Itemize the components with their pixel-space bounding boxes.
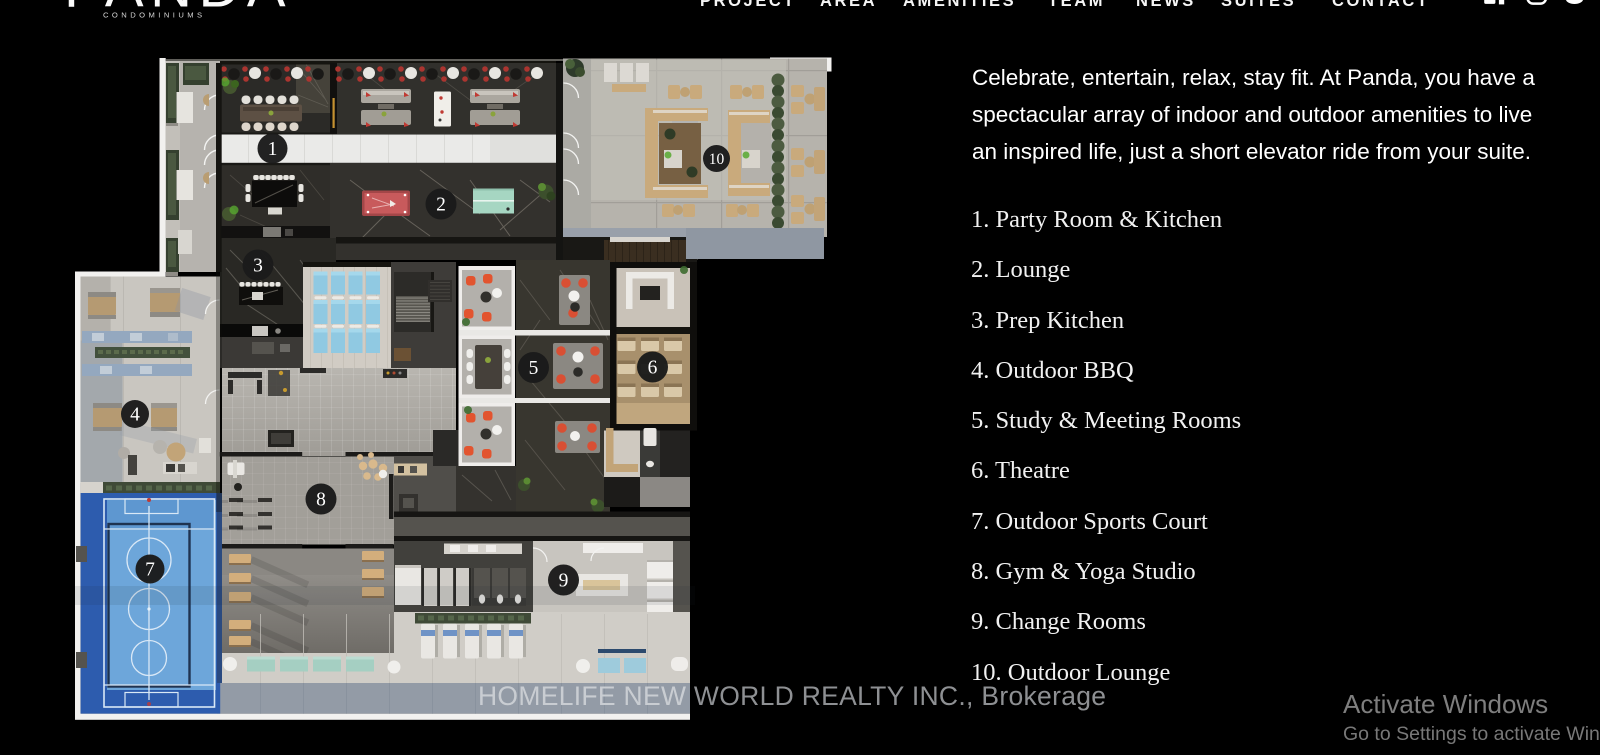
svg-text:2: 2	[436, 195, 446, 216]
svg-text:9: 9	[559, 571, 569, 592]
svg-text:PROJECT: PROJECT	[700, 0, 796, 10]
svg-text:SUITES: SUITES	[1221, 0, 1296, 10]
svg-text:CONTACT: CONTACT	[1332, 0, 1430, 10]
svg-text:6: 6	[648, 358, 658, 379]
svg-text:4: 4	[130, 405, 140, 426]
svg-text:8: 8	[316, 490, 326, 511]
svg-text:10: 10	[709, 151, 725, 168]
svg-text:AMENITIES: AMENITIES	[903, 0, 1016, 10]
svg-text:3: 3	[253, 256, 263, 277]
svg-text:TEAM: TEAM	[1048, 0, 1105, 10]
svg-text:NEWS: NEWS	[1136, 0, 1196, 10]
svg-text:AREA: AREA	[820, 0, 877, 10]
svg-text:5: 5	[529, 358, 539, 379]
svg-text:1: 1	[268, 139, 278, 160]
svg-text:7: 7	[145, 560, 155, 581]
svg-text:CONDOMINIUMS: CONDOMINIUMS	[103, 11, 206, 20]
